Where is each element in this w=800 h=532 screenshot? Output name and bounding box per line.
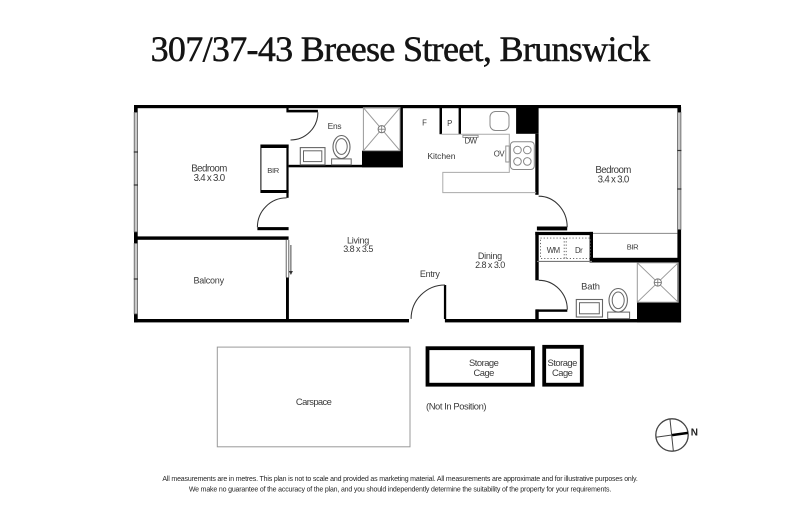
svg-text:Balcony: Balcony	[194, 276, 225, 286]
svg-text:F: F	[422, 119, 427, 128]
svg-text:2.8 x 3.0: 2.8 x 3.0	[475, 260, 505, 270]
svg-text:Kitchen: Kitchen	[427, 151, 455, 161]
svg-text:Dr: Dr	[575, 246, 583, 255]
svg-text:We make no guarantee of the ac: We make no guarantee of the accuracy of …	[189, 487, 611, 494]
svg-text:P: P	[447, 119, 452, 128]
svg-text:WM: WM	[547, 246, 560, 255]
svg-text:Ens: Ens	[328, 121, 342, 131]
svg-text:N: N	[691, 427, 698, 438]
svg-text:3.4 x 3.0: 3.4 x 3.0	[598, 174, 630, 185]
svg-text:Bath: Bath	[581, 280, 600, 291]
svg-text:All measurements are in metres: All measurements are in metres. This pla…	[162, 476, 637, 483]
svg-text:(Not In Position): (Not In Position)	[426, 400, 486, 411]
svg-text:3.8 x 3.5: 3.8 x 3.5	[343, 244, 373, 254]
svg-text:BIR: BIR	[267, 166, 279, 175]
svg-text:OV: OV	[494, 150, 506, 159]
svg-text:DW: DW	[465, 137, 478, 146]
svg-text:Carspace: Carspace	[296, 396, 332, 407]
svg-text:307/37-43 Breese Street, Bruns: 307/37-43 Breese Street, Brunswick	[151, 29, 650, 69]
svg-text:Cage: Cage	[552, 367, 573, 378]
svg-text:Entry: Entry	[420, 269, 441, 279]
svg-text:BIR: BIR	[627, 242, 639, 251]
svg-text:3.4 x 3.0: 3.4 x 3.0	[194, 173, 226, 184]
svg-text:Cage: Cage	[473, 367, 494, 378]
